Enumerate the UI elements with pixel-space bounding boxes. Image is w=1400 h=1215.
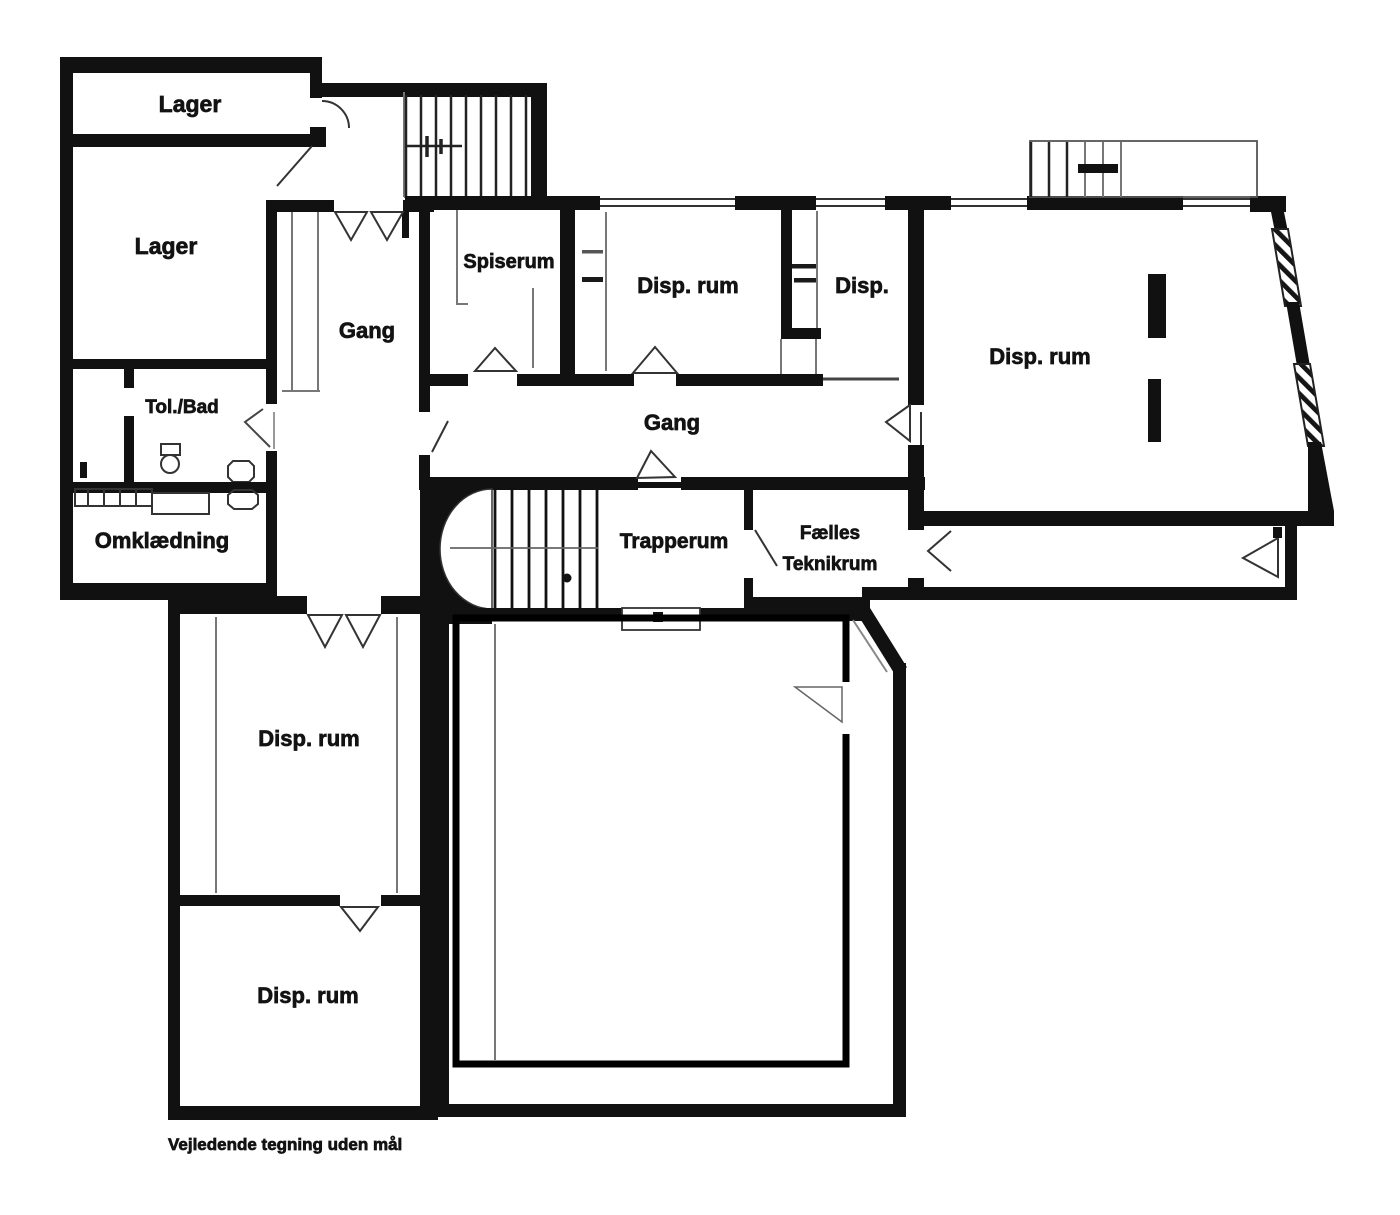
svg-text:Disp. rum: Disp. rum (989, 344, 1090, 369)
svg-text:Disp.: Disp. (835, 273, 889, 298)
svg-text:Disp. rum: Disp. rum (258, 726, 359, 751)
svg-text:Trapperum: Trapperum (620, 530, 729, 553)
svg-text:Teknikrum: Teknikrum (783, 554, 878, 575)
svg-text:Lager: Lager (159, 91, 222, 117)
svg-text:Tol./Bad: Tol./Bad (145, 397, 219, 418)
svg-text:Gang: Gang (339, 318, 395, 343)
svg-text:Omklædning: Omklædning (95, 528, 229, 553)
svg-text:Spiserum: Spiserum (463, 251, 554, 273)
svg-text:Disp. rum: Disp. rum (257, 983, 358, 1008)
svg-text:Lager: Lager (135, 233, 198, 259)
svg-text:Vejledende tegning uden mål: Vejledende tegning uden mål (168, 1135, 402, 1154)
svg-text:Gang: Gang (644, 410, 700, 435)
svg-text:Fælles: Fælles (800, 523, 860, 544)
svg-text:Disp. rum: Disp. rum (637, 273, 738, 298)
